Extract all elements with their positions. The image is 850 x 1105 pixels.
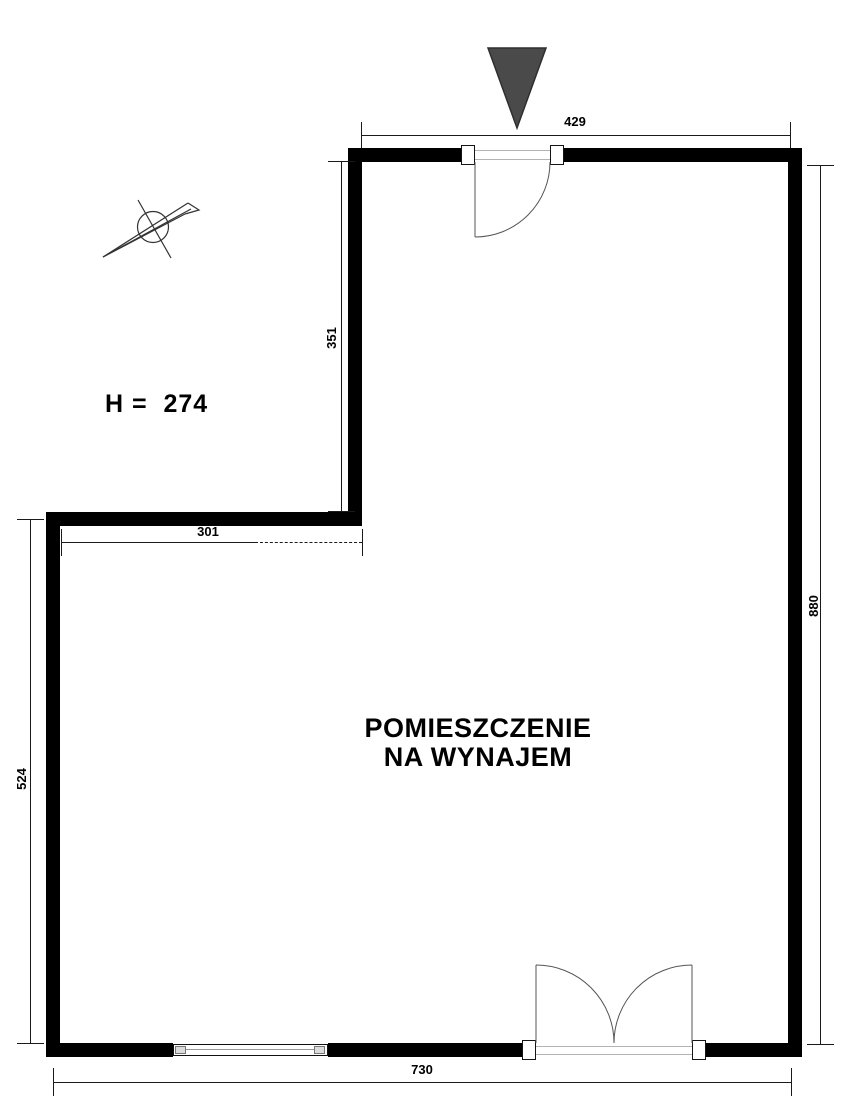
double-door-swing-icon	[530, 960, 700, 1048]
dimension-tick	[790, 122, 791, 148]
dimension-tick	[791, 1068, 792, 1096]
dimension-tick	[53, 1068, 54, 1096]
room-name-line2: NA WYNAJEM	[318, 743, 638, 772]
dimension-label: 351	[324, 308, 340, 368]
dimension-label: 730	[392, 1062, 452, 1078]
north-arrow-icon	[95, 185, 210, 275]
dimension-line-inner	[61, 542, 255, 543]
dimension-line-inner-dashed	[255, 542, 362, 543]
dimension-label: 301	[178, 524, 238, 540]
wall-top-left-segment	[348, 148, 465, 162]
dimension-tick	[17, 519, 44, 520]
dimension-line-bottom	[53, 1082, 791, 1083]
wall-bottom-left-segment	[46, 1043, 173, 1057]
dimension-line-top	[361, 135, 790, 136]
dimension-tick	[328, 161, 355, 162]
window-end-cap	[314, 1046, 325, 1054]
dimension-label: 880	[806, 576, 822, 636]
room-name-line1: POMIESZCZENIE	[318, 714, 638, 743]
dimension-tick	[61, 529, 62, 556]
door-threshold-line	[475, 150, 550, 151]
wall-bottom-right-segment	[703, 1043, 802, 1057]
dimension-line-left	[30, 519, 31, 1043]
wall-left	[46, 512, 60, 1057]
floor-plan: 429 351 301 524 880 730 H = 274 POMIESZC…	[0, 0, 850, 1105]
ceiling-height-label: H = 274	[105, 390, 208, 419]
dimension-tick	[807, 165, 834, 166]
window-symbol	[173, 1044, 328, 1056]
door-swing-icon	[468, 158, 560, 250]
dimension-tick	[361, 122, 362, 148]
wall-right	[788, 148, 802, 1057]
dimension-tick	[17, 1043, 44, 1044]
wall-top-right-segment	[560, 148, 802, 162]
dimension-tick	[328, 511, 355, 512]
dimension-tick	[807, 1044, 834, 1045]
wall-middle-vertical	[348, 148, 362, 526]
entrance-arrow-icon	[486, 46, 548, 130]
window-pane-line	[176, 1049, 325, 1050]
dimension-tick	[362, 529, 363, 556]
door-threshold-line	[536, 1054, 692, 1055]
window-end-cap	[175, 1046, 186, 1054]
wall-bottom-middle-segment	[328, 1043, 525, 1057]
room-name-label: POMIESZCZENIE NA WYNAJEM	[318, 714, 638, 772]
dimension-line-upper-left	[341, 161, 342, 512]
dimension-label: 429	[545, 114, 605, 130]
dimension-label: 524	[14, 749, 30, 809]
